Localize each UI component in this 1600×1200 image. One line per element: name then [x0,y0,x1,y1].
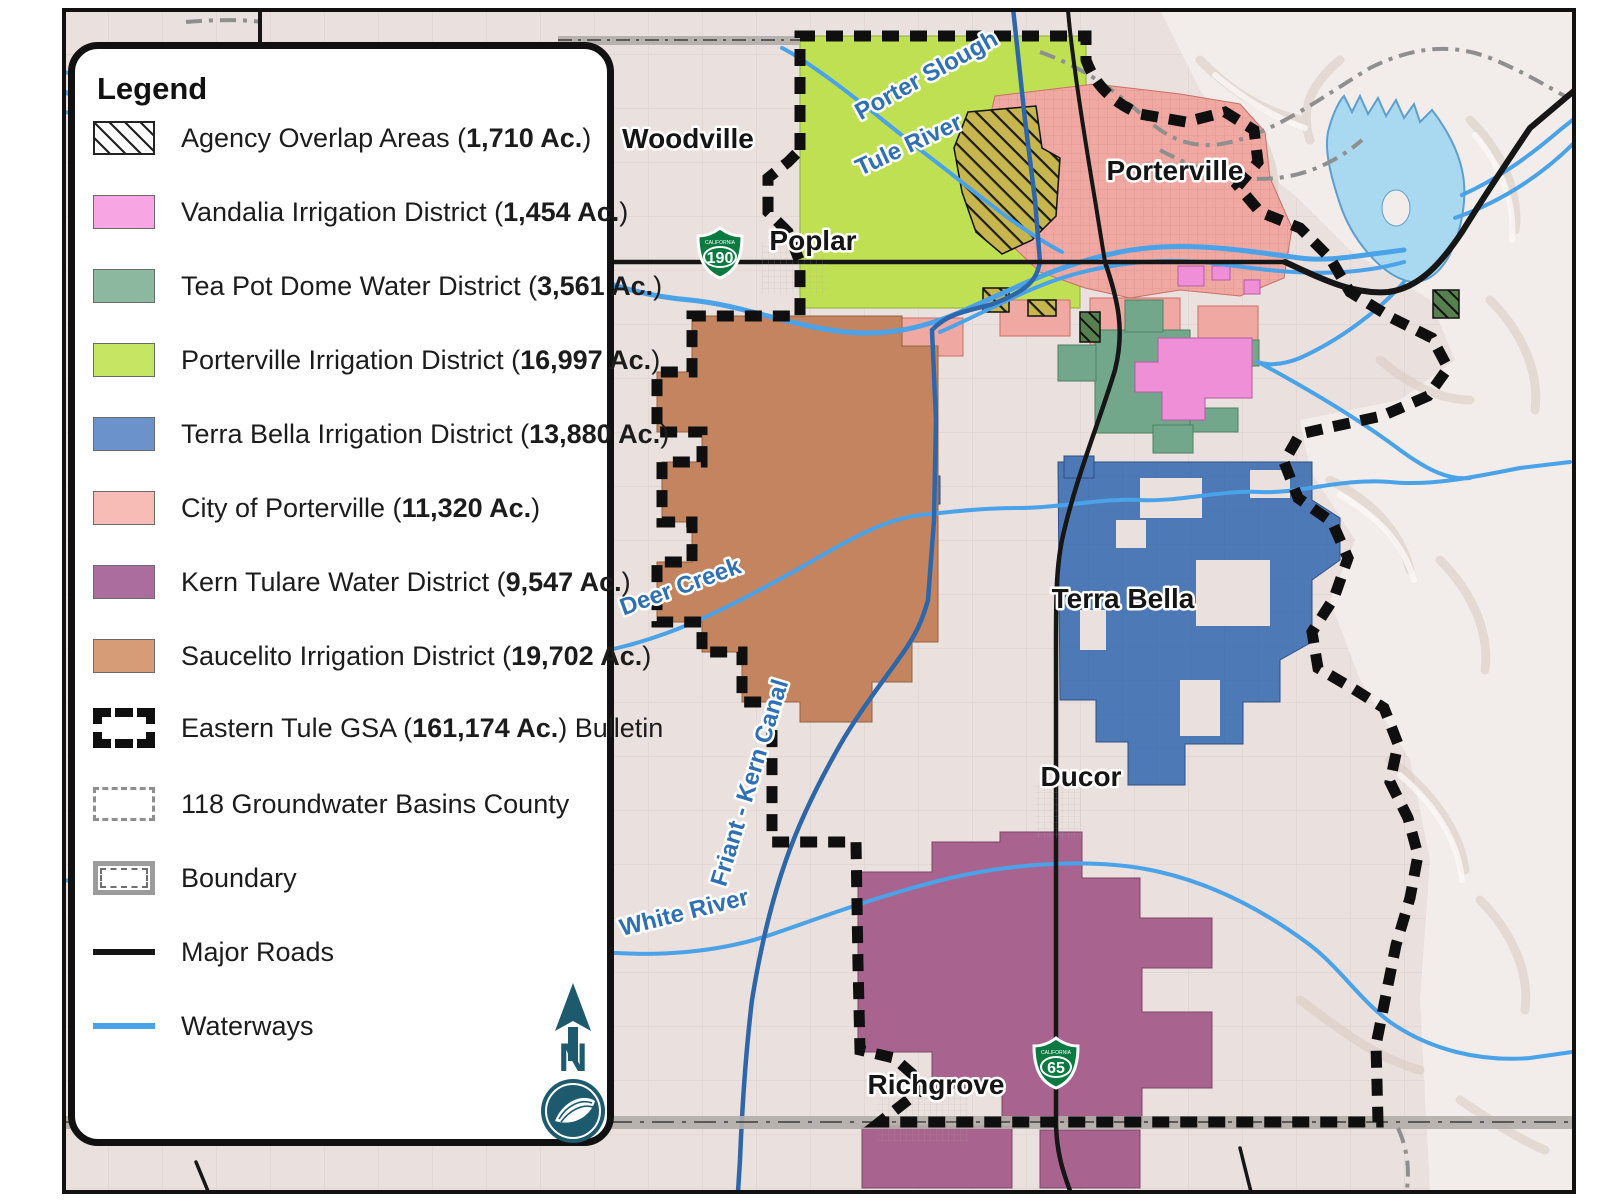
town-label-poplar: Poplar [769,225,856,256]
legend-item-agency-overlap: Agency Overlap Areas (1,710 Ac.) [93,119,591,157]
legend-item-boundary: Boundary [93,859,297,897]
legend-item-major-roads: Major Roads [93,933,334,971]
legend-item-groundwater-basins: 118 Groundwater Basins County [93,785,569,823]
svg-text:65: 65 [1047,1060,1065,1077]
legend-item-porterville-id: Porterville Irrigation District (16,997 … [93,341,660,379]
legend-item-kern-tulare: Kern Tulare Water District (9,547 Ac.) [93,563,631,601]
porterville-id-swatch-icon [93,343,155,377]
vandalia-swatch-icon [93,195,155,229]
terra-bella-swatch-icon [93,417,155,451]
city-of-porterville-swatch-icon [93,491,155,525]
org-logo-icon [541,1079,605,1143]
saucelito-swatch-icon [93,639,155,673]
svg-text:190: 190 [707,250,734,267]
county-boundary-swatch-icon [93,861,155,895]
svg-text:CALIFORNIA: CALIFORNIA [705,240,736,246]
map-screenshot: { "legend": { "title": "Legend", "north_… [0,0,1600,1200]
town-label-woodville: Woodville [622,123,754,154]
north-letter: N [559,1036,588,1080]
town-label-terra-bella: Terra Bella [1052,583,1195,614]
legend-item-terra-bella: Terra Bella Irrigation District (13,880 … [93,415,669,453]
legend-panel: Legend Agency Overlap Areas (1,710 Ac.) … [68,42,614,1146]
legend-title: Legend [97,71,207,107]
kern-tulare-swatch-icon [93,565,155,599]
town-label-porterville: Porterville [1107,155,1244,186]
gsa-boundary-swatch-icon [93,708,155,748]
legend-item-saucelito: Saucelito Irrigation District (19,702 Ac… [93,637,651,675]
legend-item-waterways: Waterways [93,1007,314,1045]
road-line-swatch-icon [93,949,155,955]
town-label-richgrove: Richgrove [868,1069,1005,1100]
hatch-swatch-icon [93,121,155,155]
legend-item-eastern-tule-gsa: Eastern Tule GSA (161,174 Ac.) Bulletin [93,709,663,747]
tea-pot-dome-swatch-icon [93,269,155,303]
legend-item-tea-pot-dome: Tea Pot Dome Water District (3,561 Ac.) [93,267,662,305]
basin-boundary-swatch-icon [93,787,155,821]
svg-text:CALIFORNIA: CALIFORNIA [1041,1050,1072,1056]
town-label-ducor: Ducor [1041,761,1122,792]
legend-item-city-of-porterville: City of Porterville (11,320 Ac.) [93,489,540,527]
legend-item-vandalia: Vandalia Irrigation District (1,454 Ac.) [93,193,628,231]
water-line-swatch-icon [93,1023,155,1029]
north-arrow-icon: N [513,979,633,1149]
